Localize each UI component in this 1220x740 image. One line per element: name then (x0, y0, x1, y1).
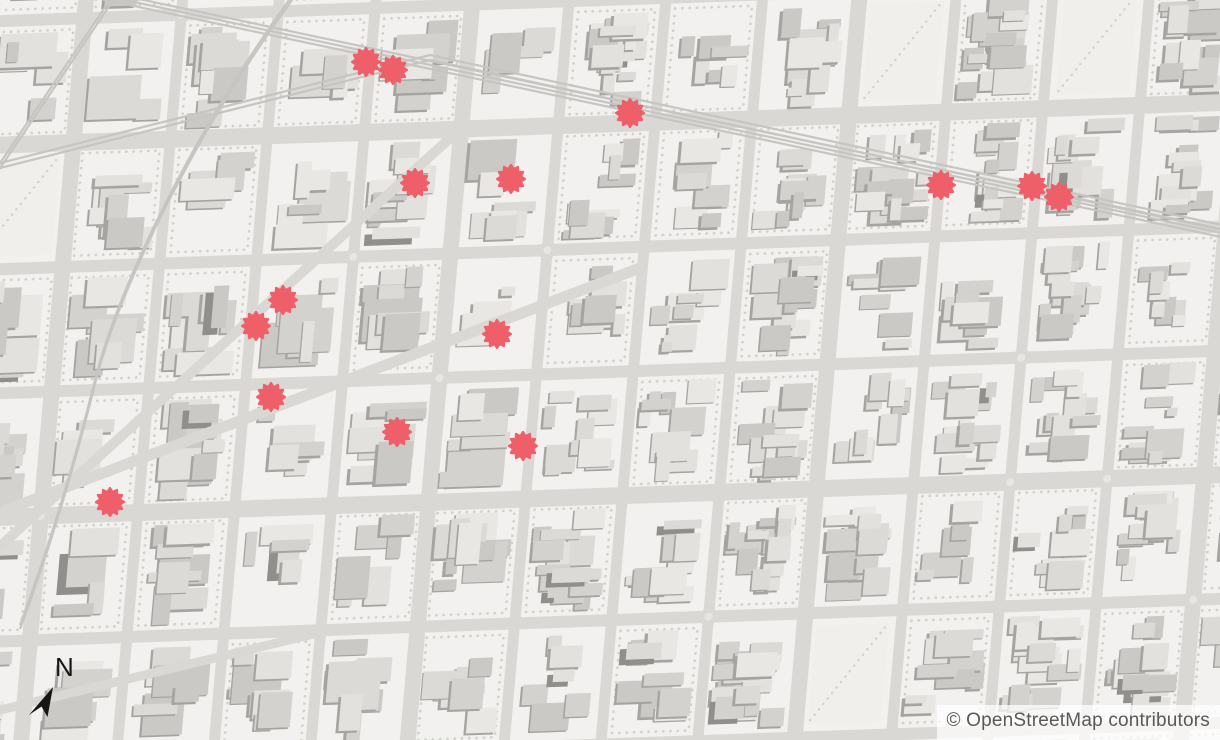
map-view[interactable]: N © OpenStreetMap contributors (0, 0, 1220, 740)
north-arrow-icon (26, 683, 56, 721)
compass[interactable]: N (24, 654, 84, 720)
basemap-3d-buildings (0, 0, 1220, 740)
north-arrow-shape (29, 687, 53, 717)
attribution[interactable]: © OpenStreetMap contributors (937, 705, 1220, 740)
compass-north-label: N (55, 654, 74, 680)
